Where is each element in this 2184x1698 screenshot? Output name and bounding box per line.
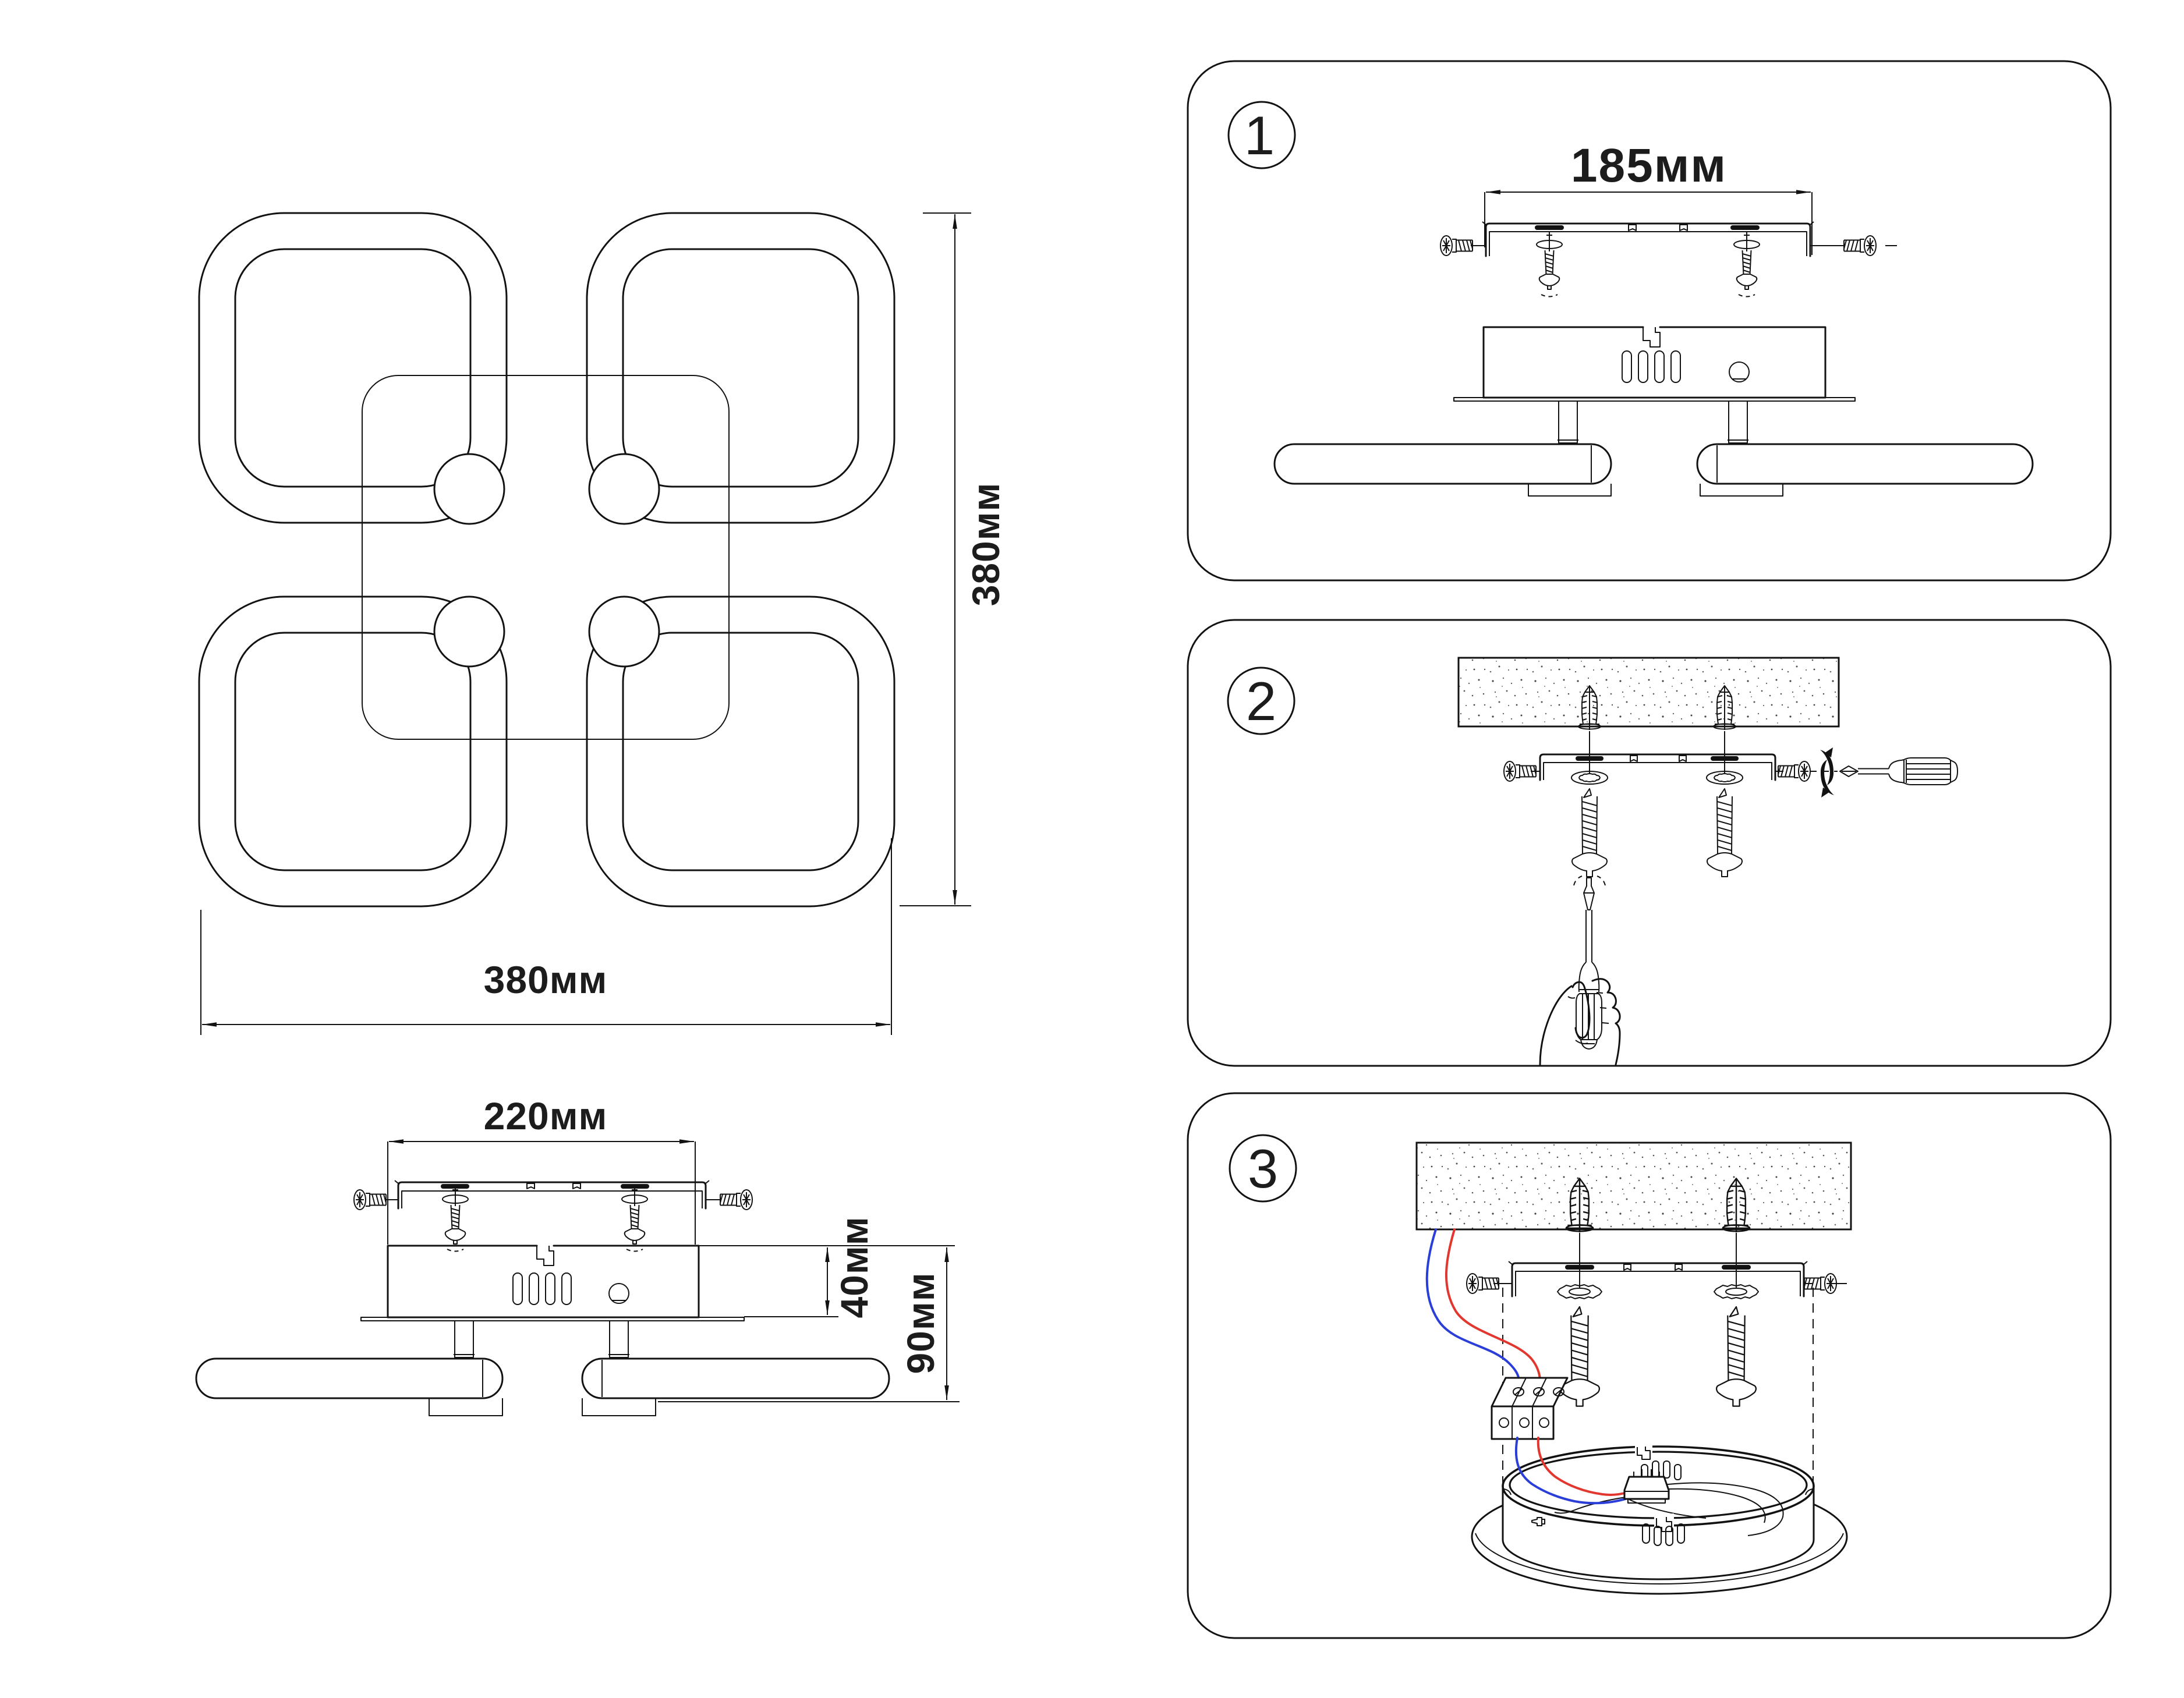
svg-text:380мм: 380мм (964, 483, 1007, 607)
svg-text:220мм: 220мм (484, 1094, 608, 1137)
svg-text:40мм: 40мм (833, 1216, 876, 1318)
svg-text:380мм: 380мм (484, 958, 608, 1001)
svg-text:1: 1 (1244, 105, 1275, 166)
svg-text:90мм: 90мм (899, 1272, 942, 1374)
svg-text:185мм: 185мм (1571, 139, 1727, 192)
svg-text:2: 2 (1246, 671, 1276, 732)
svg-text:3: 3 (1248, 1138, 1278, 1199)
